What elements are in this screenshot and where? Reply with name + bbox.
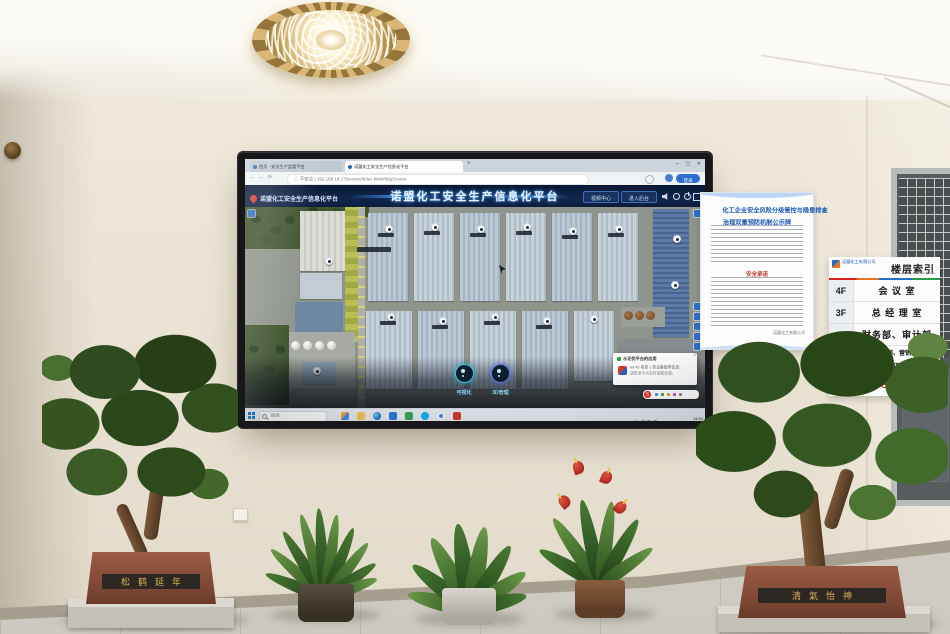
security-label: 不安全 bbox=[300, 177, 314, 182]
star-icon[interactable] bbox=[645, 175, 654, 184]
toast-title: 水无忧平台的应用 bbox=[623, 355, 657, 361]
widgets-icon[interactable] bbox=[341, 412, 349, 420]
map-marker[interactable] bbox=[569, 227, 577, 235]
nav-buttons[interactable]: ← → ⟳ bbox=[249, 174, 273, 180]
url: 192.168.18.17/screen/index.html#/bigScre… bbox=[317, 177, 406, 182]
url-field[interactable]: △ 不安全 | 192.168.18.17/screen/index.html#… bbox=[287, 174, 589, 185]
tray-network-icon bbox=[641, 420, 645, 422]
map-marker[interactable] bbox=[325, 257, 333, 265]
anthurium-flower bbox=[571, 460, 585, 476]
tray-ime-icon bbox=[653, 420, 657, 422]
new-tab-button[interactable]: + bbox=[467, 160, 471, 167]
login-button[interactable]: 登录 bbox=[676, 174, 700, 183]
tray-chevron-icon[interactable]: ∧ bbox=[634, 419, 638, 421]
map-grass-strip bbox=[345, 207, 358, 342]
toast-app-icon bbox=[618, 366, 627, 375]
floor-label: 总 经 理 室 bbox=[872, 306, 923, 319]
3d-manage-label: 3D管理 bbox=[480, 383, 520, 401]
map-marker[interactable] bbox=[590, 315, 598, 323]
wps-icon[interactable] bbox=[405, 412, 413, 420]
right-bonsai-pot: 清氣怡神 bbox=[738, 566, 906, 618]
display-screen: 首页 - 安全生产监管平台 诺盟化工安全生产信息化平台 + ─ ▢ ✕ ← → … bbox=[245, 159, 705, 421]
building-label bbox=[432, 325, 448, 329]
crystal-ceiling-lamp bbox=[252, 0, 412, 80]
ime-icon bbox=[673, 393, 676, 396]
map-marker[interactable] bbox=[523, 223, 531, 231]
search-icon bbox=[262, 414, 267, 419]
browser-tab-inactive[interactable]: 首页 - 安全生产监管平台 bbox=[250, 161, 342, 172]
anthurium-flower bbox=[556, 493, 573, 510]
floor-label: 会 议 室 bbox=[878, 284, 915, 297]
poster-title-line1: 化工企业安全风险分级管控与隐患排查 bbox=[722, 205, 791, 214]
chrome-icon[interactable] bbox=[437, 412, 445, 420]
plant-satellite-map[interactable]: 可视化 3D管理 水无忧平台的应用 09:45 收到 1 条设备报警信息， 请登… bbox=[245, 207, 705, 408]
left-bonsai-pot: 松鹤延年 bbox=[86, 552, 216, 604]
lobby-photo: 首页 - 安全生产监管平台 诺盟化工安全生产信息化平台 + ─ ▢ ✕ ← → … bbox=[0, 0, 950, 634]
floor-number: 4F bbox=[829, 280, 854, 301]
floor-index-subtitle: Floor Index bbox=[917, 271, 935, 275]
ime-icon bbox=[655, 393, 658, 396]
map-marker[interactable] bbox=[615, 225, 623, 233]
building-label bbox=[562, 235, 578, 239]
3d-manage-button[interactable] bbox=[491, 364, 510, 383]
floor-row-3f: 3F 总 经 理 室 bbox=[829, 302, 940, 324]
map-marker[interactable] bbox=[431, 223, 439, 231]
map-building-white bbox=[300, 211, 348, 271]
file-explorer-icon[interactable] bbox=[357, 412, 365, 420]
favicon bbox=[348, 165, 352, 169]
url-text: △ 不安全 | 192.168.18.17/screen/index.html#… bbox=[294, 175, 406, 182]
map-marker[interactable] bbox=[477, 225, 485, 233]
map-pond bbox=[295, 302, 343, 334]
video-center-button[interactable]: 视频中心 bbox=[583, 191, 619, 203]
lily-pot bbox=[298, 584, 354, 622]
profile-avatar[interactable] bbox=[665, 174, 673, 182]
floor-sign-header: 诺盟化工有限公司 楼层索引 Floor Index bbox=[829, 257, 940, 278]
visualization-label: 可视化 bbox=[444, 383, 484, 401]
notification-toast[interactable]: 水无忧平台的应用 09:45 收到 1 条设备报警信息， 请登录平台及时查看处理… bbox=[613, 353, 697, 385]
edge-icon[interactable] bbox=[373, 412, 381, 420]
poster-paragraph bbox=[711, 277, 803, 329]
map-marker[interactable] bbox=[387, 313, 395, 321]
left-bonsai-foliage bbox=[42, 328, 238, 528]
anthurium-pot bbox=[575, 580, 625, 618]
map-marker[interactable] bbox=[439, 317, 447, 325]
map-tank-rust bbox=[635, 311, 644, 320]
map-tank-white bbox=[315, 341, 324, 350]
toast-line2: 请登录平台及时查看处理。 bbox=[630, 370, 676, 376]
anthurium-plant bbox=[545, 455, 655, 585]
toast-line1: 09:45 收到 1 条设备报警信息， bbox=[630, 364, 683, 370]
tab-title: 首页 - 安全生产监管平台 bbox=[259, 163, 305, 169]
map-tank-rust bbox=[624, 311, 633, 320]
map-marker[interactable] bbox=[491, 313, 499, 321]
input-method-bar[interactable]: S bbox=[643, 390, 699, 399]
map-tank-white bbox=[291, 341, 300, 350]
map-marker[interactable] bbox=[671, 281, 679, 289]
map-tank-rust bbox=[646, 311, 655, 320]
peace-lily-plant bbox=[265, 470, 385, 598]
building-label bbox=[424, 231, 440, 235]
browser-addressbar: ← → ⟳ △ 不安全 | 192.168.18.17/screen/index… bbox=[245, 172, 705, 186]
window-controls[interactable]: ─ ▢ ✕ bbox=[675, 161, 703, 167]
enter-backend-button[interactable]: 进入后台 bbox=[621, 191, 657, 203]
browser-tab-active[interactable]: 诺盟化工安全生产信息化平台 bbox=[345, 161, 463, 172]
map-tank-white bbox=[327, 341, 336, 350]
building-label bbox=[378, 233, 394, 237]
company-name: 诺盟化工有限公司 bbox=[842, 258, 876, 264]
tab-title: 诺盟化工安全生产信息化平台 bbox=[354, 163, 409, 169]
floor-row-4f: 4F 会 议 室 bbox=[829, 280, 940, 302]
settings-gear-icon[interactable] bbox=[673, 193, 680, 200]
poster-paragraph bbox=[711, 225, 803, 263]
building-label bbox=[380, 321, 396, 325]
ime-icon bbox=[679, 393, 682, 396]
building-label bbox=[484, 321, 500, 325]
floor-number: 3F bbox=[829, 302, 854, 323]
search-input[interactable] bbox=[270, 413, 294, 417]
start-button[interactable] bbox=[248, 412, 255, 419]
building-label bbox=[516, 231, 532, 235]
browser-tabbar: 首页 - 安全生产监管平台 诺盟化工安全生产信息化平台 + ─ ▢ ✕ bbox=[245, 159, 705, 172]
map-marker[interactable] bbox=[543, 317, 551, 325]
building-label-long bbox=[357, 247, 391, 252]
lamp-center bbox=[316, 30, 346, 50]
map-tank-white bbox=[303, 341, 312, 350]
right-bonsai-foliage bbox=[696, 326, 948, 536]
cursor-icon bbox=[499, 265, 506, 274]
mail-app-icon[interactable] bbox=[389, 412, 397, 420]
building-label bbox=[536, 325, 552, 329]
taskbar-search[interactable] bbox=[259, 411, 327, 421]
platform-header: 诺盟化工安全生产信息化平台 诺盟化工安全生产信息化平台 视频中心 进入后台 bbox=[245, 185, 705, 207]
company-logo-icon bbox=[832, 260, 840, 268]
wall-bell bbox=[4, 142, 21, 159]
building-label bbox=[470, 233, 486, 237]
middle-pot bbox=[442, 588, 496, 625]
ime-icon bbox=[667, 393, 670, 396]
pot-inscription: 松鹤延年 bbox=[102, 574, 201, 590]
ime-icon bbox=[661, 393, 664, 396]
map-marker[interactable] bbox=[673, 235, 681, 243]
building-label bbox=[608, 233, 624, 237]
ceiling bbox=[0, 0, 950, 100]
sogou-icon: S bbox=[644, 391, 651, 398]
tray-volume-icon bbox=[647, 420, 651, 422]
system-tray[interactable]: ∧ 14:54 2021/11/8 bbox=[632, 410, 703, 421]
windows-taskbar: ∧ 14:54 2021/11/8 bbox=[245, 408, 705, 421]
pot-inscription: 清氣怡神 bbox=[758, 588, 886, 604]
map-control-button[interactable] bbox=[248, 210, 255, 217]
app-red-icon[interactable] bbox=[453, 412, 461, 420]
power-icon[interactable] bbox=[684, 193, 691, 200]
tim-icon[interactable] bbox=[421, 412, 429, 420]
visualization-button[interactable] bbox=[455, 364, 474, 383]
anthurium-flower bbox=[599, 469, 614, 485]
map-building bbox=[300, 273, 342, 299]
anthurium-flower bbox=[612, 499, 629, 516]
map-marker[interactable] bbox=[385, 225, 393, 233]
favicon bbox=[253, 165, 257, 169]
green-badge-icon bbox=[617, 357, 621, 361]
